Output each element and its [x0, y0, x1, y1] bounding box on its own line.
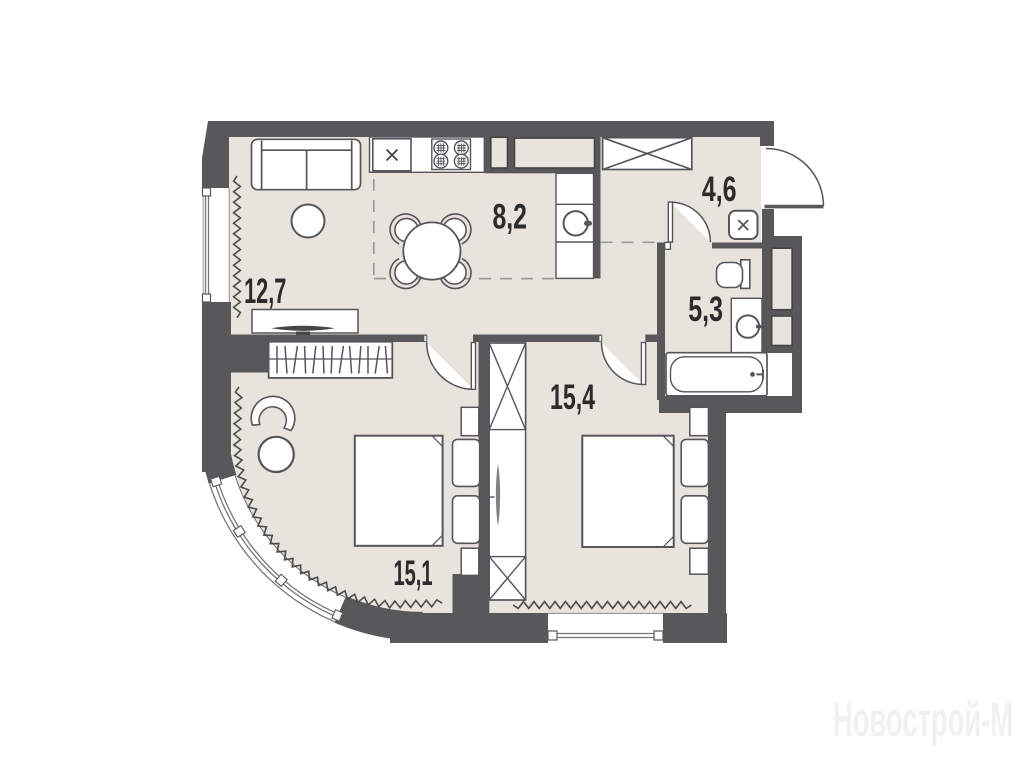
svg-text:Новострой-М: Новострой-М — [833, 694, 1013, 747]
svg-text:5,3: 5,3 — [688, 290, 723, 329]
svg-text:15,4: 15,4 — [550, 378, 595, 417]
svg-text:8,2: 8,2 — [492, 197, 527, 236]
svg-text:12,7: 12,7 — [244, 272, 286, 311]
svg-text:15,1: 15,1 — [393, 554, 432, 593]
svg-text:4,6: 4,6 — [702, 170, 737, 209]
